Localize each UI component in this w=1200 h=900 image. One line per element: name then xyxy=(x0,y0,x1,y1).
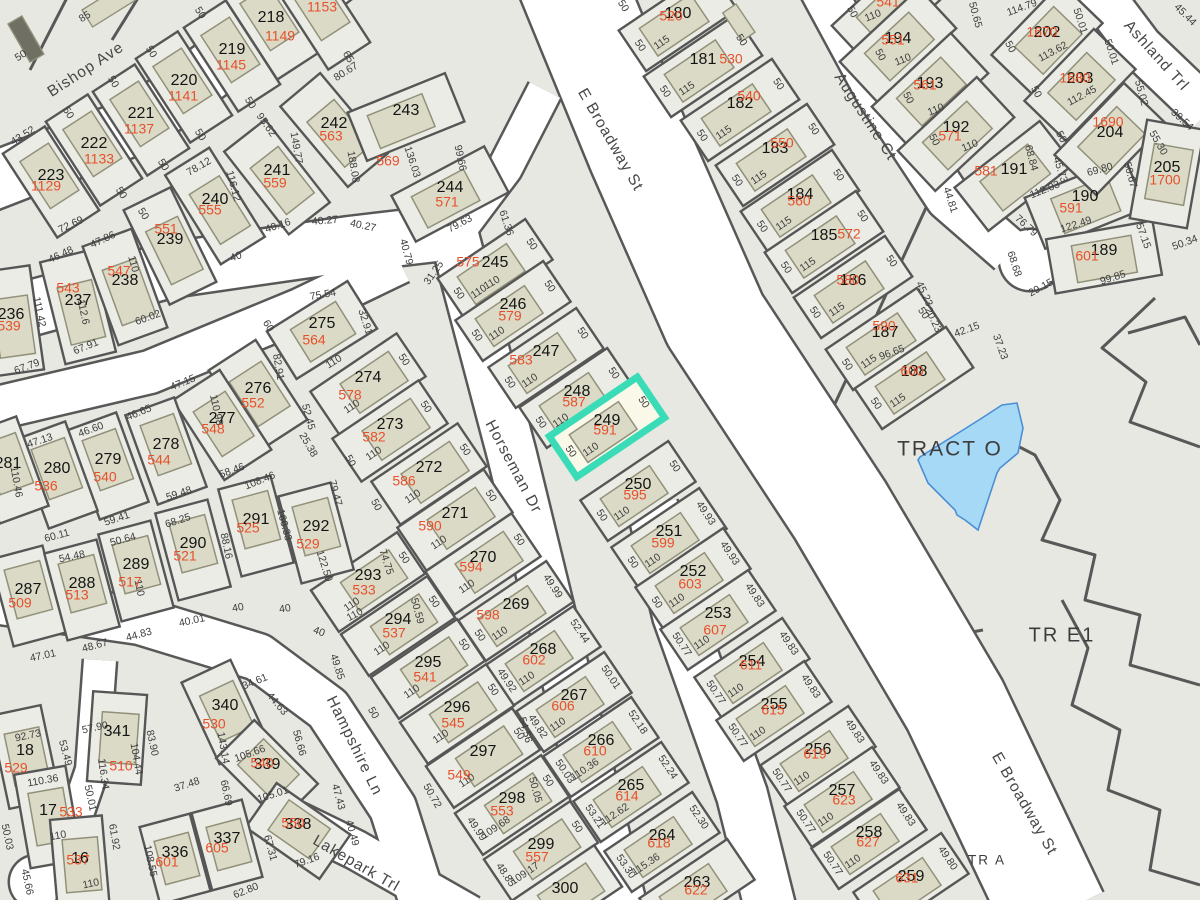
parcel-address: 590 xyxy=(418,518,442,534)
tract-label: TR E1 xyxy=(1029,624,1096,646)
parcel-number: 18 xyxy=(16,742,34,759)
parcel-number: 269 xyxy=(503,596,530,613)
parcel-number: 275 xyxy=(309,315,336,332)
parcel-address: 1137 xyxy=(124,121,154,137)
parcel-number: 300 xyxy=(552,880,579,897)
parcel-number: 221 xyxy=(128,105,155,122)
parcel-number: 17 xyxy=(39,802,57,819)
tract-label: TR A xyxy=(968,853,1006,868)
parcel-number: 289 xyxy=(123,556,150,573)
parcel-address: 530 xyxy=(202,716,226,732)
parcel-number: 280 xyxy=(44,460,71,477)
parcel-address: 594 xyxy=(459,559,483,575)
parcel-map-canvas[interactable]: 5050110505011050501105050110505011050501… xyxy=(0,0,1200,900)
parcel-number: 181 xyxy=(690,51,717,68)
parcel-number: 292 xyxy=(303,518,330,535)
parcel-number: 253 xyxy=(705,605,732,622)
parcel-address: 555 xyxy=(198,202,222,218)
parcel-address: 521 xyxy=(173,548,197,564)
parcel-address: 553 xyxy=(490,803,514,819)
parcel-address: 547 xyxy=(107,263,131,279)
parcel-address: 1149 xyxy=(265,28,295,44)
parcel-address: 525 xyxy=(236,520,260,536)
parcel-address: 611 xyxy=(740,657,763,673)
parcel-address: 601 xyxy=(1075,248,1099,264)
parcel-address: 571 xyxy=(435,194,459,210)
parcel-address: 552 xyxy=(241,395,265,411)
parcel-address: 550 xyxy=(770,135,794,151)
parcel-number: 278 xyxy=(153,436,180,453)
parcel-address: 600 xyxy=(900,363,924,379)
parcel-address: 540 xyxy=(250,755,274,771)
parcel-address: 578 xyxy=(338,387,362,403)
dimension-label: 40 xyxy=(231,601,245,615)
parcel-number: 341 xyxy=(104,723,131,740)
parcel-address: 591 xyxy=(593,422,617,438)
parcel-address: 533 xyxy=(352,582,376,598)
parcel-address: 603 xyxy=(678,576,702,592)
parcel-address: 513 xyxy=(65,587,89,603)
parcel-address: 618 xyxy=(647,835,671,851)
parcel-address: 543 xyxy=(56,280,80,296)
parcel-number: 185 xyxy=(811,227,838,244)
parcel-address: 1129 xyxy=(31,178,61,194)
parcel-number: 191 xyxy=(1001,161,1028,178)
parcel-address: 545 xyxy=(441,715,465,731)
parcel-address: 517 xyxy=(118,574,142,590)
parcel-address: 571 xyxy=(938,128,962,144)
parcel-address: 582 xyxy=(362,429,386,445)
parcel-address: 561 xyxy=(913,77,937,93)
parcel-address: 560 xyxy=(787,193,811,209)
parcel-number: 297 xyxy=(470,743,497,760)
parcel-number: 279 xyxy=(95,451,122,468)
parcel-address: 569 xyxy=(376,153,400,169)
parcel-number: 296 xyxy=(444,699,471,716)
parcel-address: 572 xyxy=(837,226,861,242)
parcel-number: 220 xyxy=(171,72,198,89)
parcel-address: 541 xyxy=(413,669,437,685)
parcel-address: 579 xyxy=(498,308,522,324)
parcel-address: 595 xyxy=(623,487,647,503)
parcel-address: 510 xyxy=(109,758,133,774)
parcel-address: 599 xyxy=(651,535,675,551)
parcel-address: 548 xyxy=(201,421,225,437)
parcel-number: 272 xyxy=(416,459,443,476)
parcel-address: 610 xyxy=(583,743,607,759)
parcel-address: 551 xyxy=(881,32,905,48)
parcel-address: 605 xyxy=(205,840,229,856)
parcel-address: 541 xyxy=(876,0,900,10)
dimension-label: 40.27 xyxy=(311,214,338,228)
parcel-address: 1153 xyxy=(307,0,337,15)
parcel-address: 602 xyxy=(522,652,546,668)
parcel-address: 619 xyxy=(803,746,827,762)
parcel-address: 607 xyxy=(703,622,727,638)
parcel-address: 614 xyxy=(615,788,639,804)
parcel-address: 575 xyxy=(456,254,480,270)
parcel-number: 271 xyxy=(442,505,469,522)
parcel-address: 622 xyxy=(684,882,708,898)
parcel-number: 219 xyxy=(219,41,246,58)
parcel-address: 550 xyxy=(281,815,305,831)
parcel-address: 540 xyxy=(737,88,761,104)
parcel-address: 615 xyxy=(761,702,785,718)
parcel-address: 1141 xyxy=(168,88,198,104)
parcel-address: 631 xyxy=(895,870,919,886)
parcel-address: 583 xyxy=(509,352,533,368)
parcel-address: 564 xyxy=(302,332,326,348)
parcel-address: 1690 xyxy=(1092,114,1123,130)
parcel-address: 557 xyxy=(525,849,549,865)
parcel-address: 591 xyxy=(1059,200,1083,216)
parcel-address: 549 xyxy=(447,767,471,783)
parcel-address: 544 xyxy=(147,452,171,468)
parcel-number: 281 xyxy=(0,455,21,472)
parcel-address: 606 xyxy=(551,698,575,714)
parcel-address: 627 xyxy=(856,834,880,850)
parcel-address: 536 xyxy=(34,478,58,494)
parcel-address: 559 xyxy=(263,175,287,191)
parcel-address: 533 xyxy=(59,804,83,820)
parcel-address: 537 xyxy=(382,625,406,641)
parcel-address: 601 xyxy=(155,854,179,870)
parcel-address: 1680 xyxy=(1059,70,1090,86)
parcel-address: 587 xyxy=(562,394,586,410)
parcel-address: 598 xyxy=(476,607,500,623)
parcel-address: 551 xyxy=(154,221,178,237)
parcel-address: 1145 xyxy=(216,57,246,73)
parcel-number: 247 xyxy=(533,343,560,360)
tract-label: TRACT O xyxy=(897,438,1003,461)
parcel-address: 540 xyxy=(93,469,117,485)
parcel-address: 529 xyxy=(4,760,28,776)
parcel-address: 580 xyxy=(836,272,860,288)
parcel-address: 537 xyxy=(66,852,90,868)
parcel-number: 245 xyxy=(482,254,509,271)
parcel-number: 243 xyxy=(393,102,420,119)
parcel-address: 1670 xyxy=(1026,24,1057,40)
parcel-number: 222 xyxy=(81,135,108,152)
dimension-label: 40 xyxy=(278,602,291,616)
parcel-address: 1133 xyxy=(84,151,114,167)
parcel-address: 586 xyxy=(392,473,416,489)
parcel-address: 563 xyxy=(319,128,343,144)
parcel-address: 581 xyxy=(974,163,998,179)
parcel-address: 530 xyxy=(719,51,743,67)
parcel-number: 340 xyxy=(212,697,239,714)
parcel-map[interactable]: 5050110505011050501105050110505011050501… xyxy=(0,0,1200,900)
parcel-address: 539 xyxy=(0,318,21,334)
parcel-address: 1700 xyxy=(1149,172,1180,188)
parcel-address: 509 xyxy=(8,595,32,611)
parcel-address: 623 xyxy=(832,792,856,808)
parcel-address: 590 xyxy=(872,318,896,334)
parcel-address: 529 xyxy=(296,536,320,552)
parcel-address: 520 xyxy=(659,8,683,24)
parcel-number: 218 xyxy=(258,9,285,26)
parcel-number: 274 xyxy=(355,369,382,386)
